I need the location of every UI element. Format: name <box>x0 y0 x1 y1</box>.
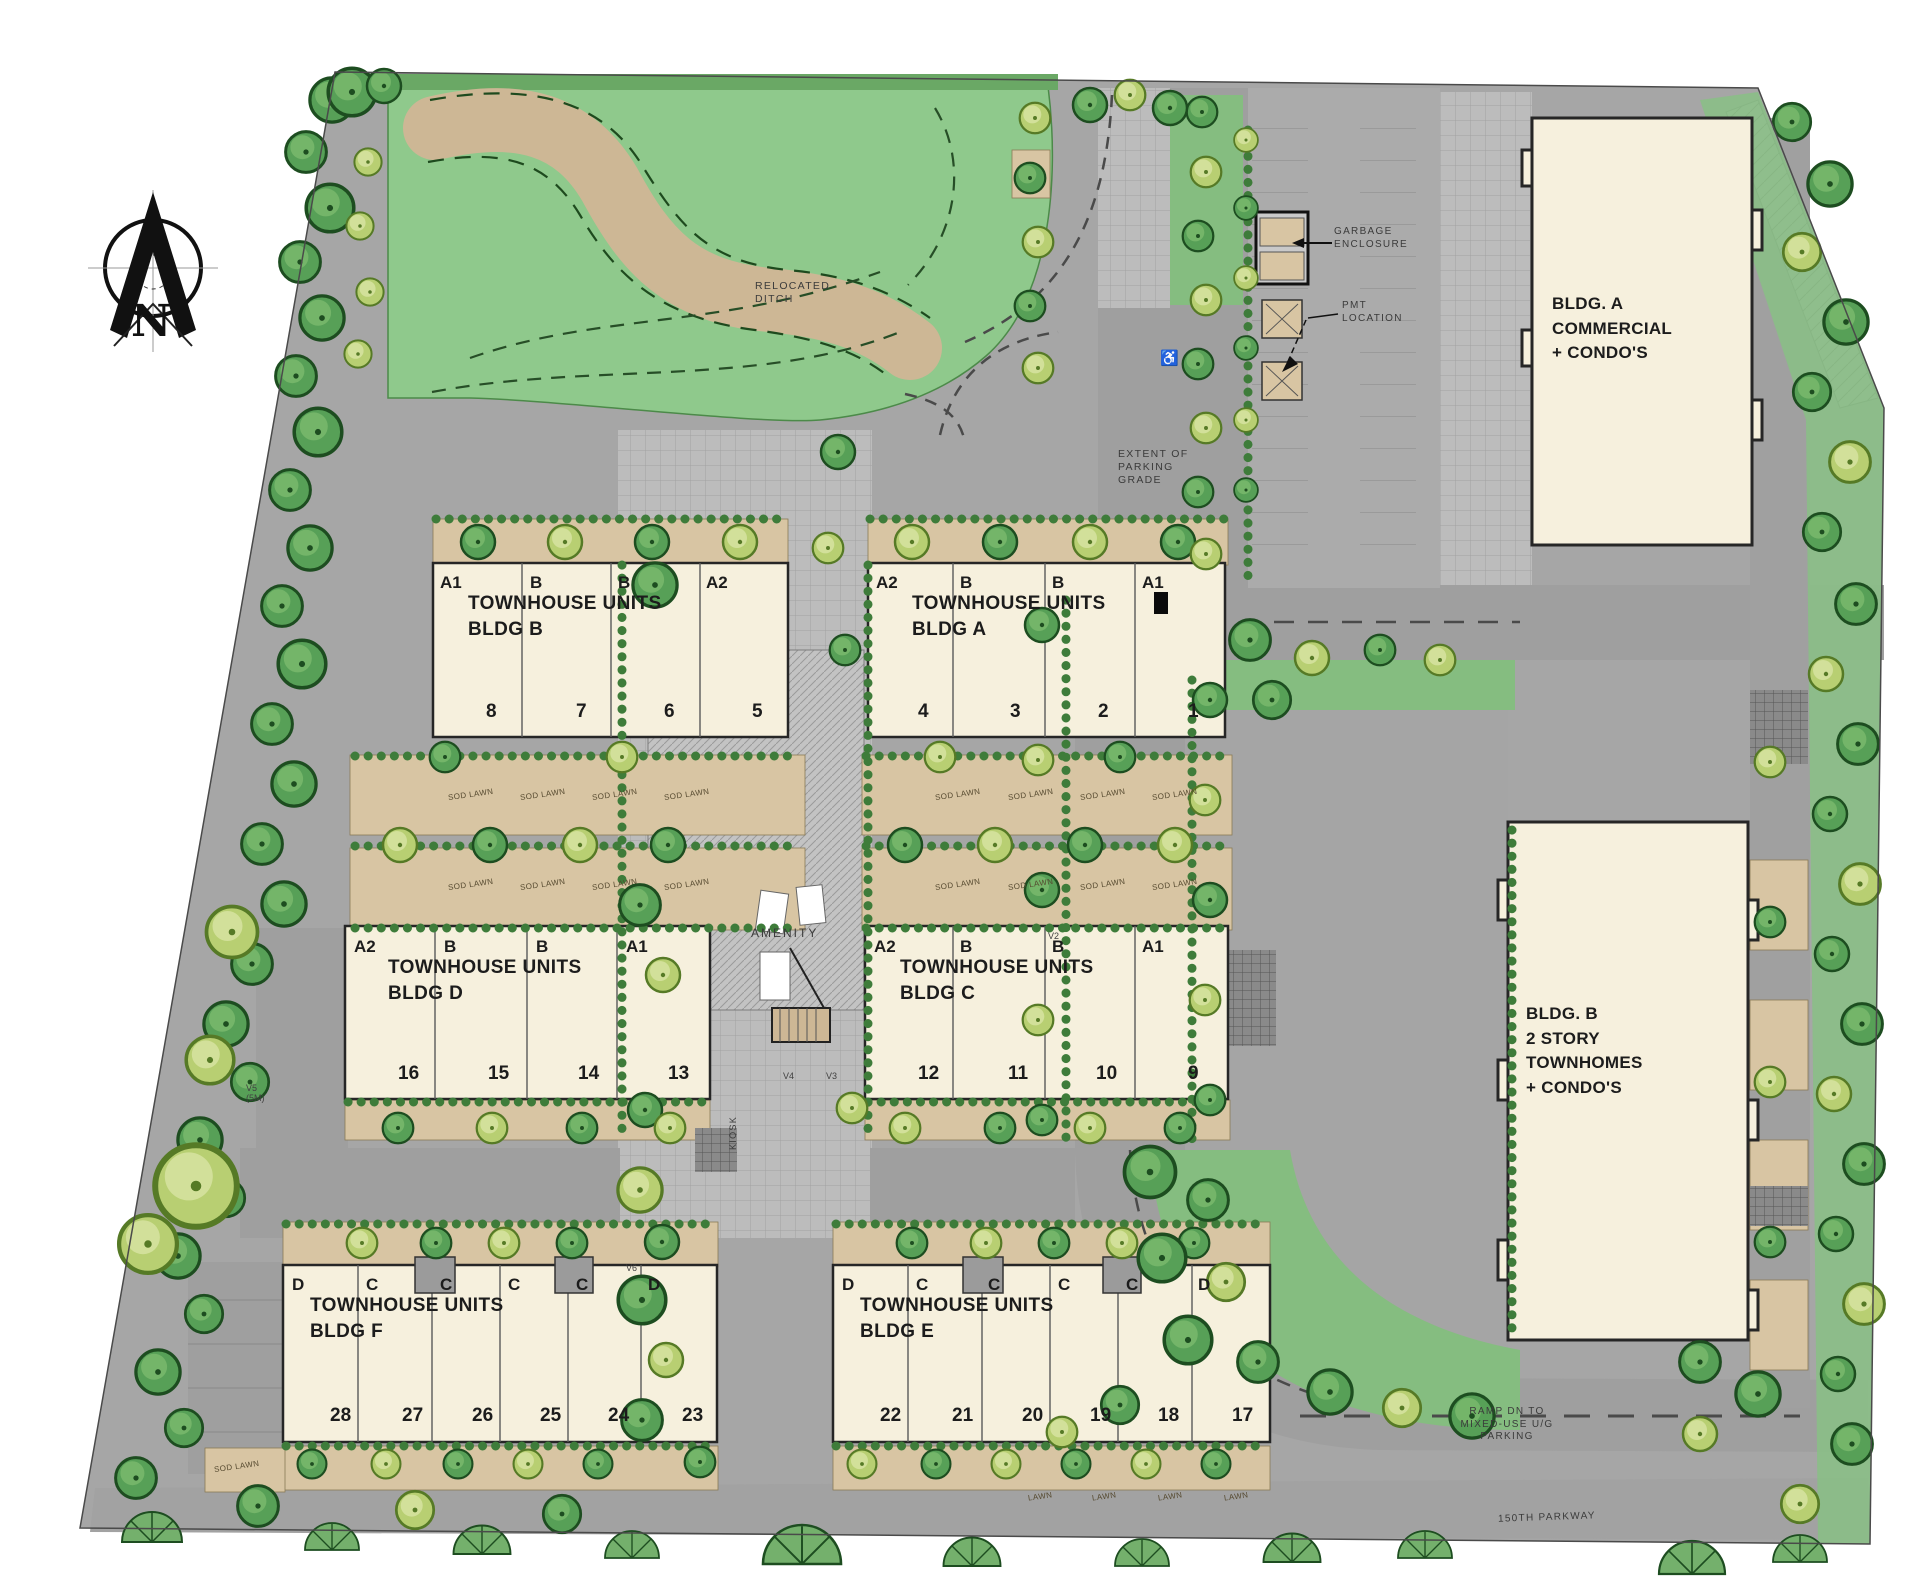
unit-number: 13 <box>668 1062 689 1086</box>
unit-type: C <box>440 1274 452 1295</box>
unit-number: 28 <box>330 1404 351 1428</box>
unit-number: 18 <box>1158 1404 1179 1428</box>
ramp-label: RAMP DN TO MIXED-USE U/G PARKING <box>1440 1406 1574 1444</box>
garbage-enclosure-label: GARBAGE ENCLOSURE <box>1334 226 1408 251</box>
callout-v4: V4 <box>783 1072 794 1082</box>
unit-type: C <box>916 1274 928 1295</box>
unit-type: D <box>842 1274 854 1295</box>
amenity-label: AMENITY <box>751 926 818 941</box>
extent-grade-label: EXTENT OF PARKING GRADE <box>1118 448 1188 487</box>
bldg-e-title: TOWNHOUSE UNITS <box>860 1294 1054 1318</box>
unit-type: D <box>1198 1274 1210 1295</box>
bldg-a-commercial-label: BLDG. A COMMERCIAL + CONDO'S <box>1552 292 1672 366</box>
unit-number: 7 <box>576 700 587 724</box>
bldg-c-title: TOWNHOUSE UNITS <box>900 956 1094 980</box>
kiosk-label: KIOSK <box>728 1116 739 1150</box>
unit-number: 21 <box>952 1404 973 1428</box>
bldg-d-subtitle: BLDG D <box>388 982 463 1006</box>
unit-type: B <box>1052 572 1064 593</box>
unit-number: 1 <box>1188 700 1199 724</box>
unit-type: C <box>1126 1274 1138 1295</box>
pmt-location-label: PMT LOCATION <box>1342 300 1403 325</box>
bldg-f-subtitle: BLDG F <box>310 1320 383 1344</box>
unit-type: A1 <box>626 936 648 957</box>
unit-number: 5 <box>752 700 763 724</box>
road-marker <box>1154 592 1168 614</box>
unit-number: 16 <box>398 1062 419 1086</box>
bldg-a-title: TOWNHOUSE UNITS <box>912 592 1106 616</box>
unit-number: 10 <box>1096 1062 1117 1086</box>
unit-number: 27 <box>402 1404 423 1428</box>
unit-type: A1 <box>1142 936 1164 957</box>
bldg-e-subtitle: BLDG E <box>860 1320 934 1344</box>
unit-type: A1 <box>1142 572 1164 593</box>
unit-type: B <box>536 936 548 957</box>
unit-type: C <box>1058 1274 1070 1295</box>
bldg-b-title: TOWNHOUSE UNITS <box>468 592 662 616</box>
unit-number: 8 <box>486 700 497 724</box>
bldg-f-title: TOWNHOUSE UNITS <box>310 1294 504 1318</box>
unit-number: 24 <box>608 1404 629 1428</box>
unit-type: A2 <box>706 572 728 593</box>
unit-number: 6 <box>664 700 675 724</box>
callout-v6: V6 <box>626 1264 637 1274</box>
unit-number: 4 <box>918 700 929 724</box>
callout-v5: V5 (5M) <box>246 1084 265 1104</box>
unit-type: A2 <box>354 936 376 957</box>
north-letter: N <box>131 294 171 349</box>
unit-number: 14 <box>578 1062 599 1086</box>
bldg-a-subtitle: BLDG A <box>912 618 987 642</box>
unit-type: C <box>988 1274 1000 1295</box>
unit-number: 20 <box>1022 1404 1043 1428</box>
unit-type: A1 <box>440 572 462 593</box>
unit-type: D <box>648 1274 660 1295</box>
unit-type: B <box>444 936 456 957</box>
unit-number: 11 <box>1008 1062 1028 1086</box>
unit-type: C <box>366 1274 378 1295</box>
unit-number: 26 <box>472 1404 493 1428</box>
bldg-b-condos-label: BLDG. B 2 STORY TOWNHOMES + CONDO'S <box>1526 1002 1643 1101</box>
relocated-ditch-label: RELOCATED DITCH <box>755 280 830 306</box>
unit-number: 9 <box>1188 1062 1199 1086</box>
unit-type: C <box>508 1274 520 1295</box>
unit-type: B <box>1052 936 1064 957</box>
bldg-c-subtitle: BLDG C <box>900 982 975 1006</box>
unit-type: A2 <box>874 936 896 957</box>
bldg-b-subtitle: BLDG B <box>468 618 543 642</box>
unit-type: B <box>960 572 972 593</box>
unit-type: C <box>576 1274 588 1295</box>
unit-type: A2 <box>876 572 898 593</box>
callout-v3: V3 <box>826 1072 837 1082</box>
unit-number: 3 <box>1010 700 1021 724</box>
unit-type: B <box>530 572 542 593</box>
unit-number: 17 <box>1232 1404 1253 1428</box>
unit-type: B <box>960 936 972 957</box>
handicap-symbol: ♿ <box>1160 350 1179 369</box>
unit-number: 12 <box>918 1062 939 1086</box>
unit-number: 22 <box>880 1404 901 1428</box>
unit-number: 23 <box>682 1404 703 1428</box>
unit-number: 19 <box>1090 1404 1111 1428</box>
unit-number: 2 <box>1098 700 1109 724</box>
unit-type: D <box>292 1274 304 1295</box>
site-plan-canvas: N RELOCATED DITCH GARBAGE ENCLOSURE PMT … <box>0 0 1920 1594</box>
unit-type: B <box>618 572 630 593</box>
unit-number: 15 <box>488 1062 509 1086</box>
unit-number: 25 <box>540 1404 561 1428</box>
bldg-d-title: TOWNHOUSE UNITS <box>388 956 582 980</box>
